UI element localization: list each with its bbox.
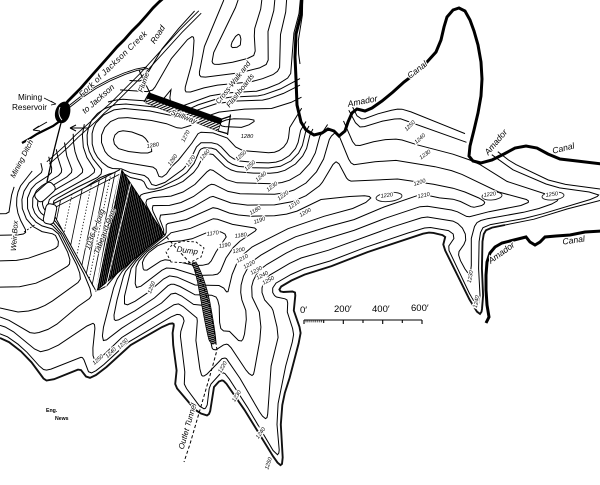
svg-text:News: News xyxy=(55,416,69,422)
svg-text:Eng.: Eng. xyxy=(46,408,58,414)
svg-text:Reservoir: Reservoir xyxy=(12,103,47,112)
svg-text:400′: 400′ xyxy=(372,304,390,315)
svg-text:1280: 1280 xyxy=(241,134,254,140)
svg-text:200′: 200′ xyxy=(334,304,352,315)
svg-text:Mining: Mining xyxy=(18,93,43,102)
svg-text:600′: 600′ xyxy=(411,303,429,314)
svg-text:0′: 0′ xyxy=(300,305,307,316)
